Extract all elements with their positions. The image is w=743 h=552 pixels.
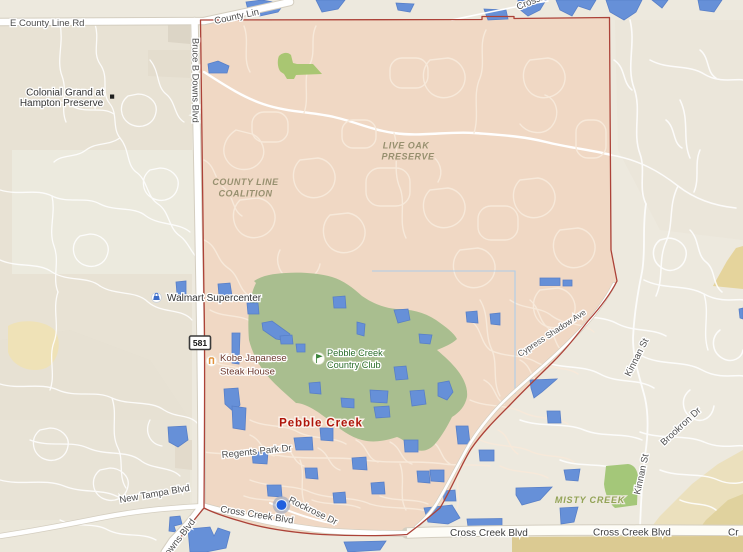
svg-text:MISTY CREEK: MISTY CREEK [555,495,626,505]
svg-text:Cross Creek Blvd: Cross Creek Blvd [450,528,528,539]
svg-text:Steak House: Steak House [220,367,275,378]
svg-text:Hampton Preserve: Hampton Preserve [20,98,104,109]
svg-text:E County Line Rd: E County Line Rd [10,18,84,29]
svg-text:Cross Creek Blvd: Cross Creek Blvd [593,528,671,539]
svg-text:COALITION: COALITION [219,189,273,199]
svg-text:Cr: Cr [728,528,739,539]
svg-text:Pebble Creek: Pebble Creek [327,348,383,358]
svg-text:Bruce B Downs Blvd: Bruce B Downs Blvd [191,38,201,123]
svg-text:Pebble Creek: Pebble Creek [279,418,363,430]
svg-text:Colonial Grand at: Colonial Grand at [26,88,104,99]
svg-text:COUNTY LINE: COUNTY LINE [212,177,279,187]
svg-text:Walmart Supercenter: Walmart Supercenter [167,293,262,304]
svg-text:PRESERVE: PRESERVE [381,152,435,162]
svg-text:581: 581 [193,338,207,348]
svg-text:Country Club: Country Club [327,360,381,370]
svg-text:Kobe Japanese: Kobe Japanese [220,353,287,364]
svg-text:LIVE OAK: LIVE OAK [383,141,431,151]
